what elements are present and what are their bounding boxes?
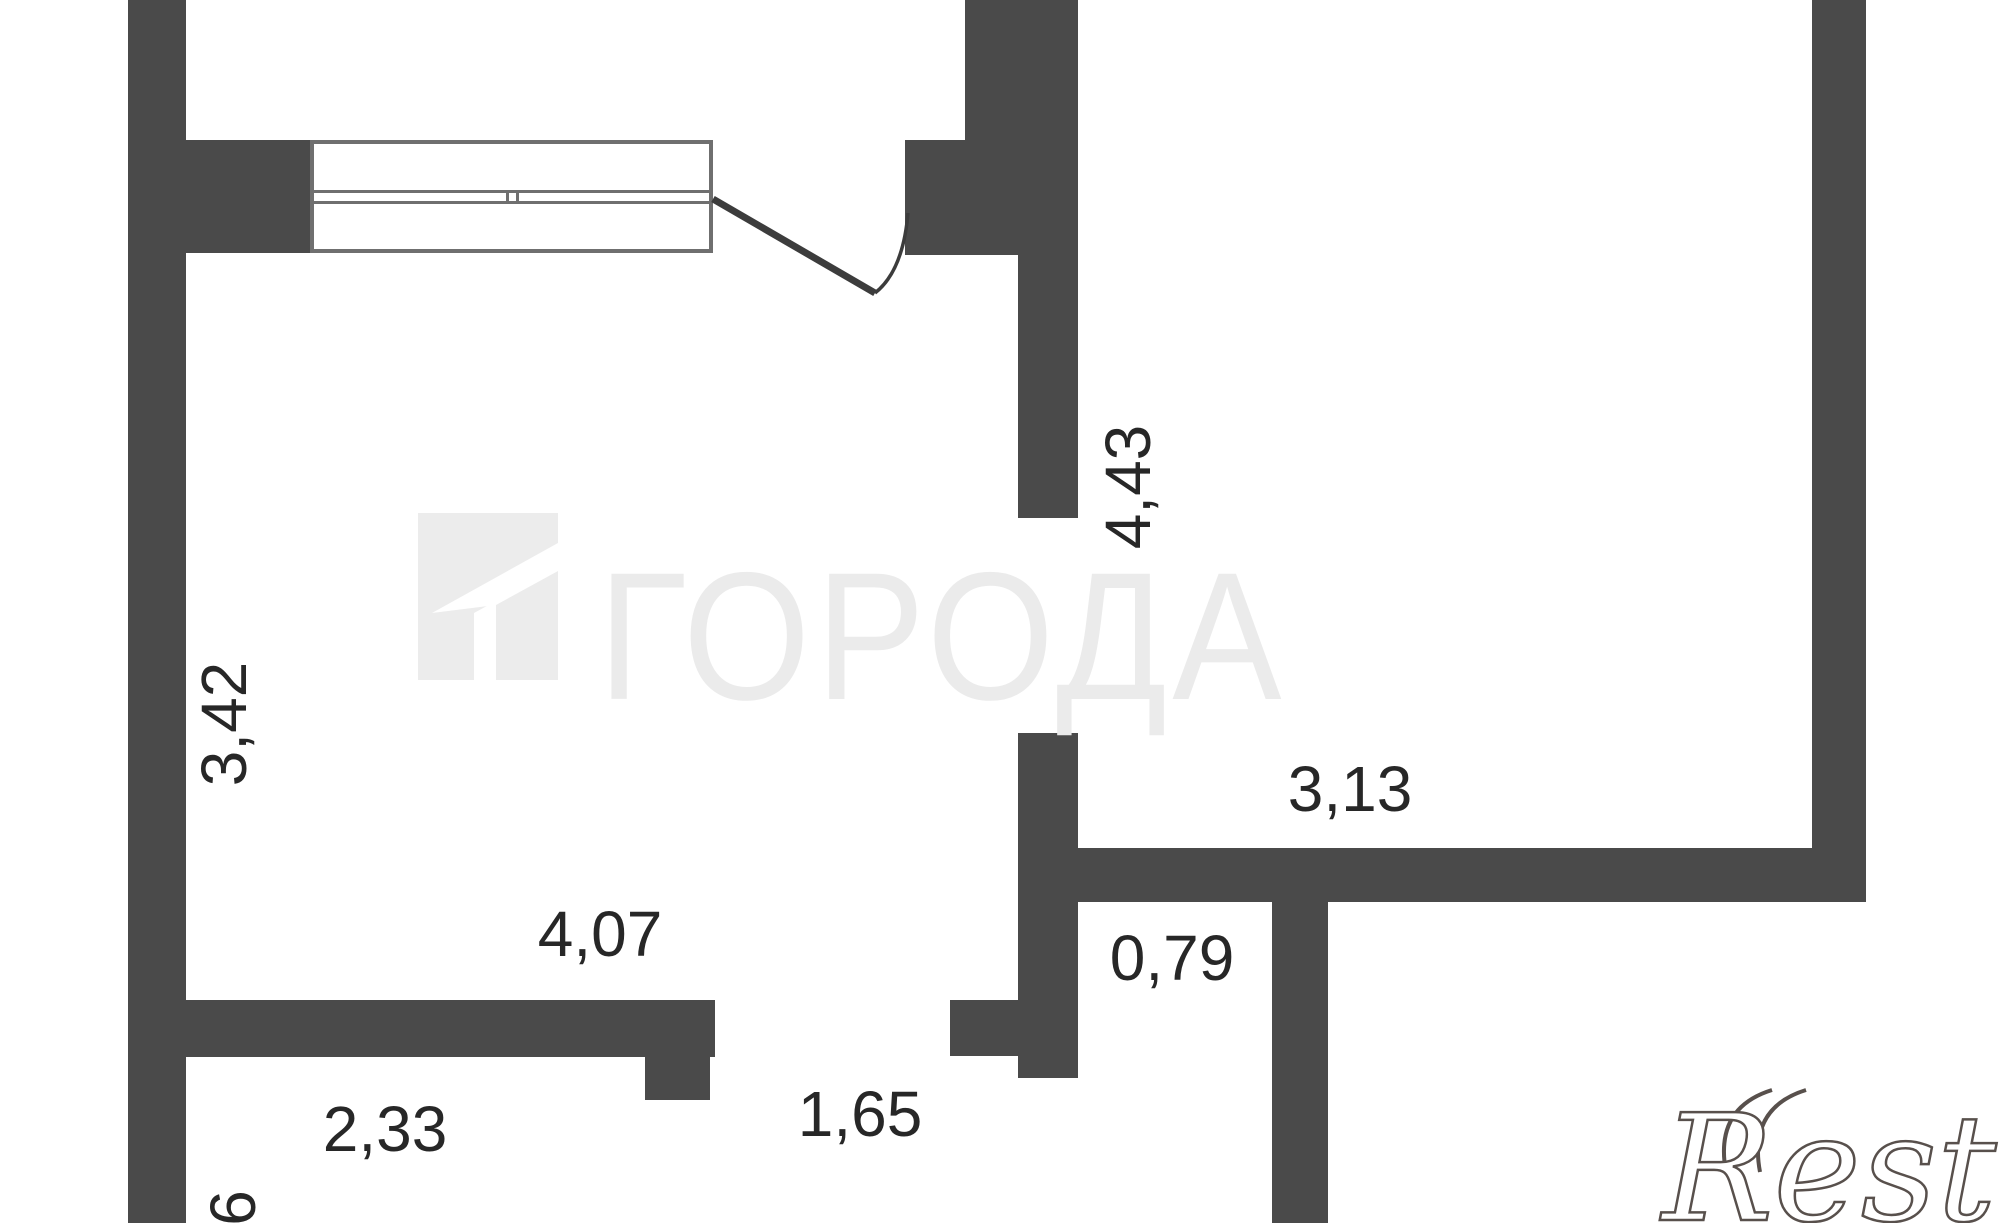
goroda-watermark-text: ГОРОДА	[598, 545, 1287, 727]
dimension-label-4-07: 4,07	[538, 897, 663, 971]
restate-watermark-text: Restate	[1662, 1095, 2000, 1223]
door-leaf-line	[713, 199, 875, 293]
dimension-label-0-79: 0,79	[1110, 921, 1235, 995]
goroda-logo-icon	[418, 513, 558, 680]
dimension-label-6-partial: 6	[196, 1190, 270, 1223]
floor-plan-canvas: ГОРОДА 4,43 3,42 3,13 4,07 0,79 1,65 2,3…	[0, 0, 2000, 1223]
dimension-label-3-13: 3,13	[1288, 752, 1413, 826]
dimension-label-3-42: 3,42	[187, 662, 261, 787]
dimension-label-1-65: 1,65	[798, 1077, 923, 1151]
dimension-label-4-43: 4,43	[1091, 425, 1165, 550]
dimension-label-2-33: 2,33	[323, 1092, 448, 1166]
door-arc	[875, 213, 908, 293]
